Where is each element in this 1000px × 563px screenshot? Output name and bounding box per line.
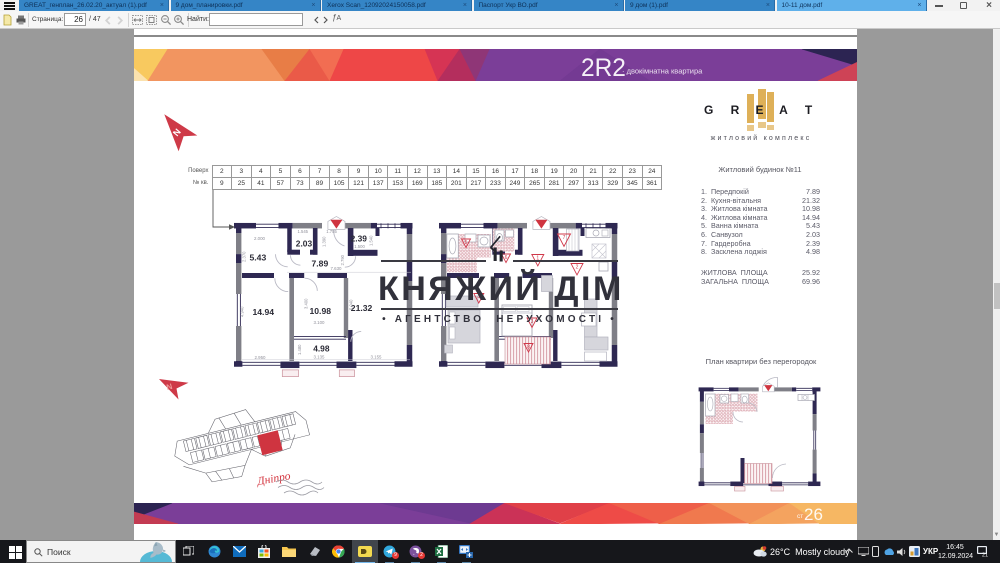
svg-text:7.630: 7.630 bbox=[331, 266, 343, 271]
svg-text:2.790: 2.790 bbox=[340, 254, 345, 265]
svg-text:2.950: 2.950 bbox=[255, 355, 267, 360]
svg-text:5: 5 bbox=[465, 240, 468, 246]
svg-text:26: 26 bbox=[804, 505, 823, 524]
svg-text:3.100: 3.100 bbox=[314, 320, 326, 325]
svg-text:1.755: 1.755 bbox=[326, 229, 337, 234]
svg-text:4.98: 4.98 bbox=[313, 344, 330, 354]
svg-text:7: 7 bbox=[563, 235, 566, 241]
svg-text:5.43: 5.43 bbox=[250, 252, 267, 262]
svg-text:1.480: 1.480 bbox=[297, 344, 302, 355]
svg-text:2.03: 2.03 bbox=[296, 238, 313, 248]
svg-text:2.000: 2.000 bbox=[254, 236, 266, 241]
svg-text:1.540: 1.540 bbox=[368, 235, 373, 246]
svg-text:21: 21 bbox=[982, 553, 988, 558]
svg-text:5.040: 5.040 bbox=[348, 299, 353, 310]
svg-text:3.135: 3.135 bbox=[314, 354, 326, 359]
svg-text:3.400: 3.400 bbox=[303, 298, 308, 309]
svg-text:21.32: 21.32 bbox=[351, 303, 373, 313]
svg-text:14.94: 14.94 bbox=[253, 307, 275, 317]
svg-text:7.89: 7.89 bbox=[312, 259, 329, 269]
svg-text:3.155: 3.155 bbox=[371, 354, 383, 359]
svg-text:10.98: 10.98 bbox=[310, 306, 332, 316]
svg-text:1.500: 1.500 bbox=[354, 244, 365, 249]
svg-text:1.390: 1.390 bbox=[321, 236, 326, 247]
svg-text:1.545: 1.545 bbox=[298, 229, 309, 234]
svg-text:4.940: 4.940 bbox=[239, 306, 244, 317]
svg-text:8: 8 bbox=[527, 345, 530, 351]
svg-text:ст: ст bbox=[797, 513, 803, 520]
svg-text:2.39: 2.39 bbox=[351, 234, 368, 244]
svg-text:2.370: 2.370 bbox=[241, 251, 246, 262]
